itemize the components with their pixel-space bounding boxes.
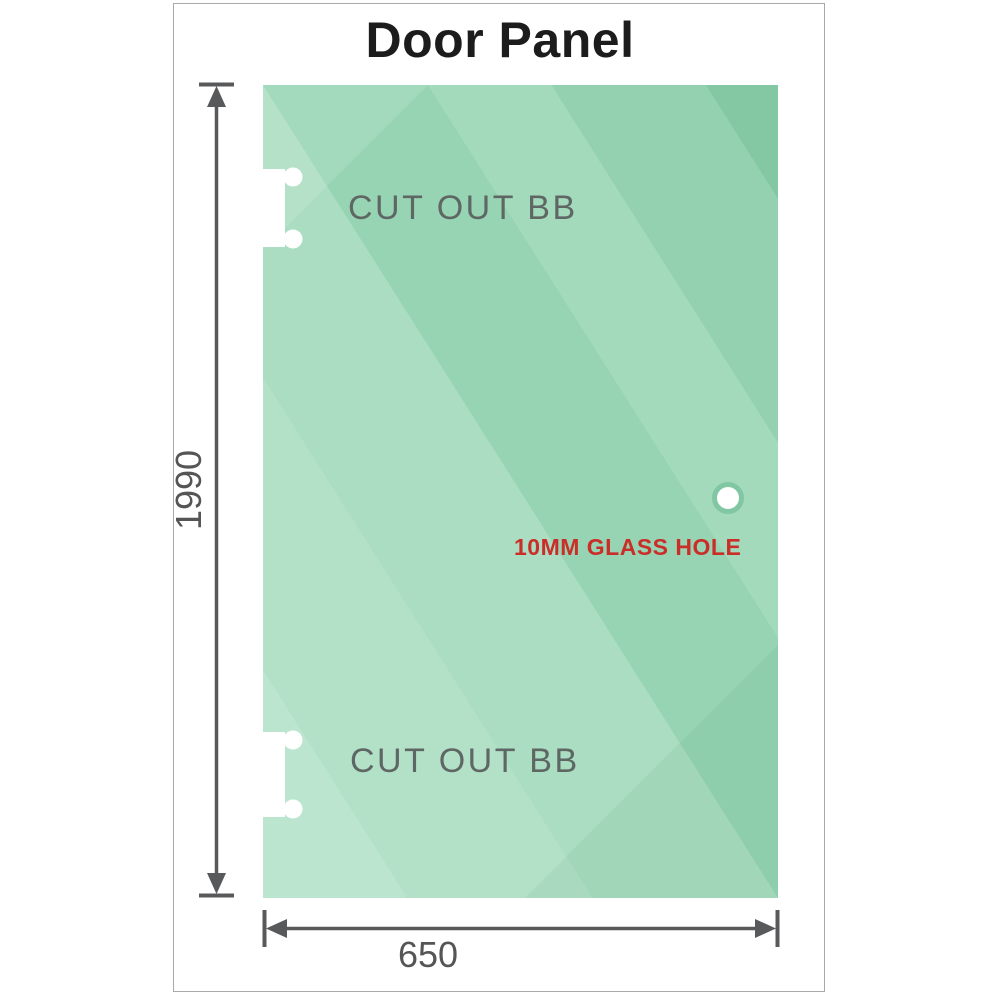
width-dimension-arrow <box>265 910 778 947</box>
door-panel-drawing <box>0 0 1000 1000</box>
width-dimension-label: 650 <box>398 934 458 976</box>
drawing-canvas: Door Panel <box>0 0 1000 1000</box>
glass-hole-label: 10MM GLASS HOLE <box>514 534 741 561</box>
cutout-top-label: CUT OUT BB <box>348 189 578 228</box>
height-dimension-label: 1990 <box>168 450 210 530</box>
glass-hole <box>715 485 742 512</box>
cutout-bottom-label: CUT OUT BB <box>350 742 580 781</box>
